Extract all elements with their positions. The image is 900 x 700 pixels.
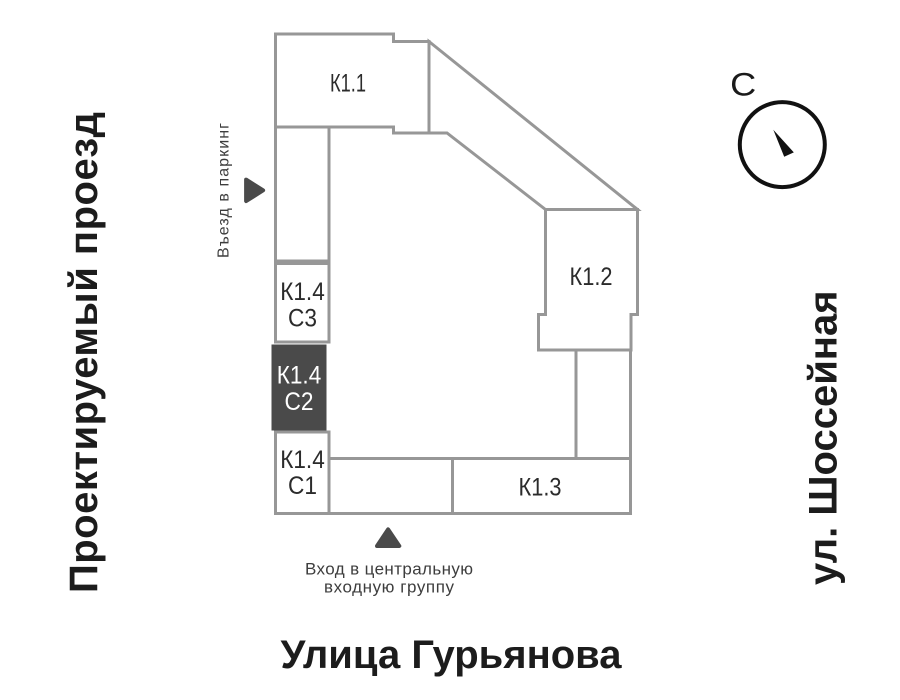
svg-text:К1.1: К1.1 [330,70,366,98]
svg-text:С2: С2 [285,388,314,416]
svg-text:ул. Шоссейная: ул. Шоссейная [802,290,846,585]
svg-text:Вход в центральную: Вход в центральную [305,560,473,579]
svg-text:К1.4: К1.4 [280,278,325,306]
svg-text:Въезд в паркинг: Въезд в паркинг [216,123,233,258]
svg-text:К1.4: К1.4 [277,362,322,390]
svg-text:Проектируемый проезд: Проектируемый проезд [62,112,106,593]
svg-text:С1: С1 [288,472,317,500]
svg-text:С3: С3 [288,305,317,333]
svg-text:К1.4: К1.4 [280,446,325,474]
svg-text:К1.2: К1.2 [570,263,613,291]
svg-text:Улица Гурьянова: Улица Гурьянова [281,633,623,677]
svg-text:К1.3: К1.3 [519,474,562,502]
svg-text:входную группу: входную группу [324,578,455,597]
svg-text:С: С [730,67,756,103]
